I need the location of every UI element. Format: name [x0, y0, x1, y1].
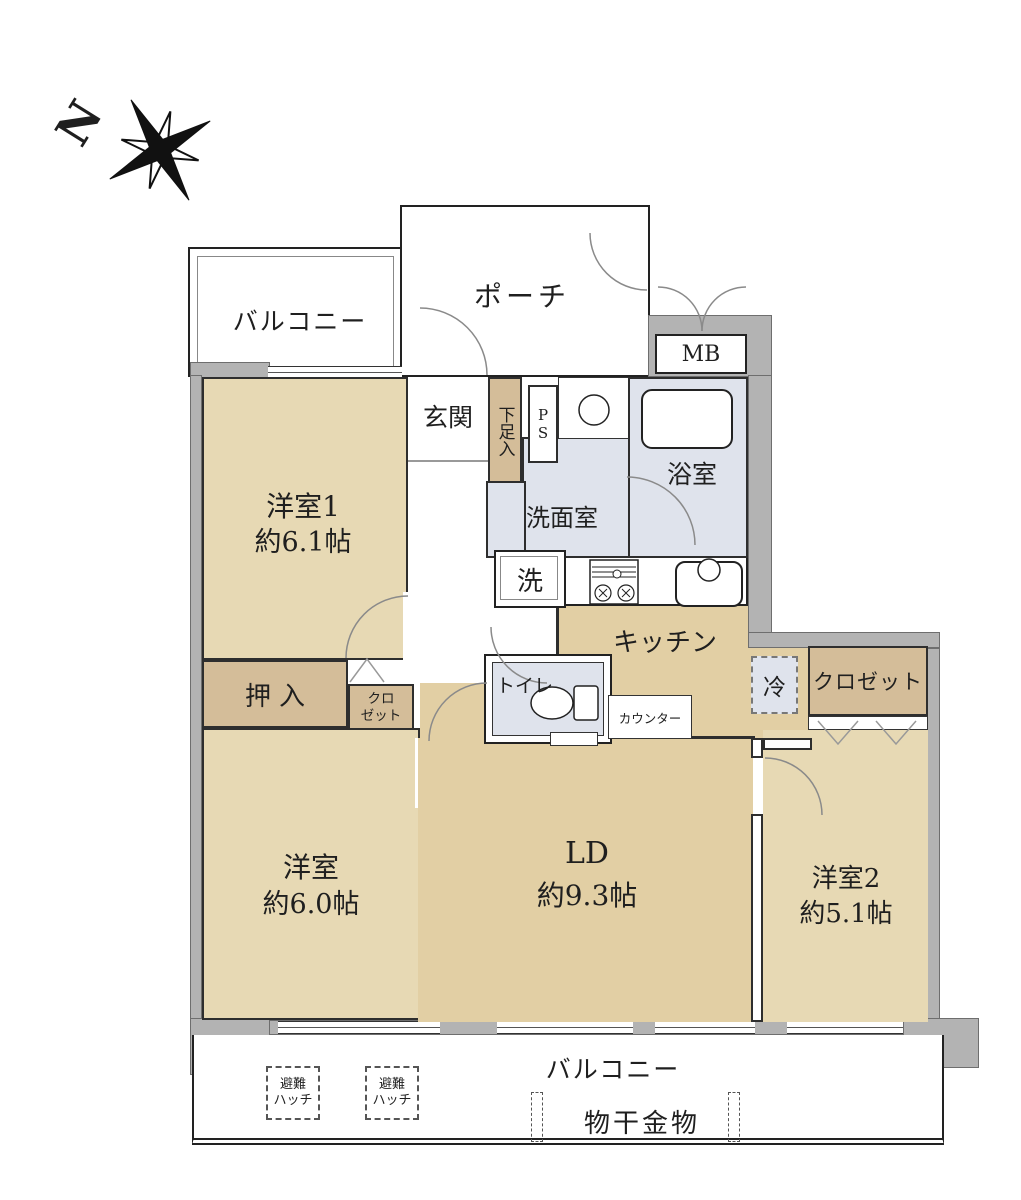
- toilet-label: トイレ: [496, 671, 576, 698]
- compass-rose-icon: [110, 100, 210, 200]
- western-room-size: 約6.0帖: [211, 882, 411, 921]
- meter-box-label: MB: [655, 334, 747, 374]
- closet-right-bifold-icon-1: [818, 721, 858, 744]
- western-room1-size: 約6.1帖: [203, 520, 403, 559]
- living-dining-size: 約9.3帖: [487, 874, 687, 914]
- balcony-bottom-label: バルコニー: [513, 1050, 713, 1086]
- bathtub-icon: [642, 390, 732, 448]
- floor-plan: N バルコニー ポーチ MB 玄関 下足入 PS 洗面室 浴室 洗 キッチン 洋…: [0, 0, 1021, 1200]
- oshiire-label: 押入: [202, 660, 348, 728]
- porch-gate-arc-right: [702, 287, 746, 331]
- closet-right-label: クロゼット: [808, 646, 928, 716]
- room1-door-arc: [346, 596, 408, 658]
- refrigerator-label: 冷: [751, 656, 798, 714]
- kitchen-label: キッチン: [565, 622, 765, 659]
- living-dining-label: LD: [487, 836, 687, 871]
- ld-door-arc: [429, 683, 487, 741]
- pipe-space-label: PS: [528, 387, 558, 461]
- bathroom-label: 浴室: [592, 455, 792, 491]
- washroom-label: 洗面室: [462, 498, 662, 533]
- porch-label: ポーチ: [422, 275, 622, 315]
- stove-icon: [590, 560, 638, 604]
- shoe-cabinet-label: 下足入: [488, 379, 522, 483]
- evacuation-hatch-2-label: 避難ハッチ: [365, 1066, 419, 1120]
- counter-label: カウンター: [608, 695, 692, 739]
- entrance-door-arc: [420, 308, 487, 375]
- sink-icon: [676, 559, 742, 606]
- closet-small-label: クロゼット: [348, 684, 414, 732]
- western-room2-label: 洋室2: [746, 858, 946, 895]
- closet-right-bifold-icon-2: [876, 721, 916, 744]
- western-room2-size: 約5.1帖: [746, 893, 946, 930]
- closet-small-bifold-icon: [350, 659, 384, 682]
- western-room-label: 洋室: [211, 846, 411, 886]
- laundry-hardware-label: 物干金物: [542, 1103, 742, 1140]
- evacuation-hatch-1-label: 避難ハッチ: [266, 1066, 320, 1120]
- washing-machine-label: 洗: [494, 550, 566, 608]
- western-room1-label: 洋室1: [203, 485, 403, 525]
- porch-gate-arc-left: [658, 287, 702, 331]
- balcony-top-label: バルコニー: [200, 302, 400, 338]
- washbasin-icon: [579, 395, 609, 425]
- room2-door-arc: [765, 758, 822, 815]
